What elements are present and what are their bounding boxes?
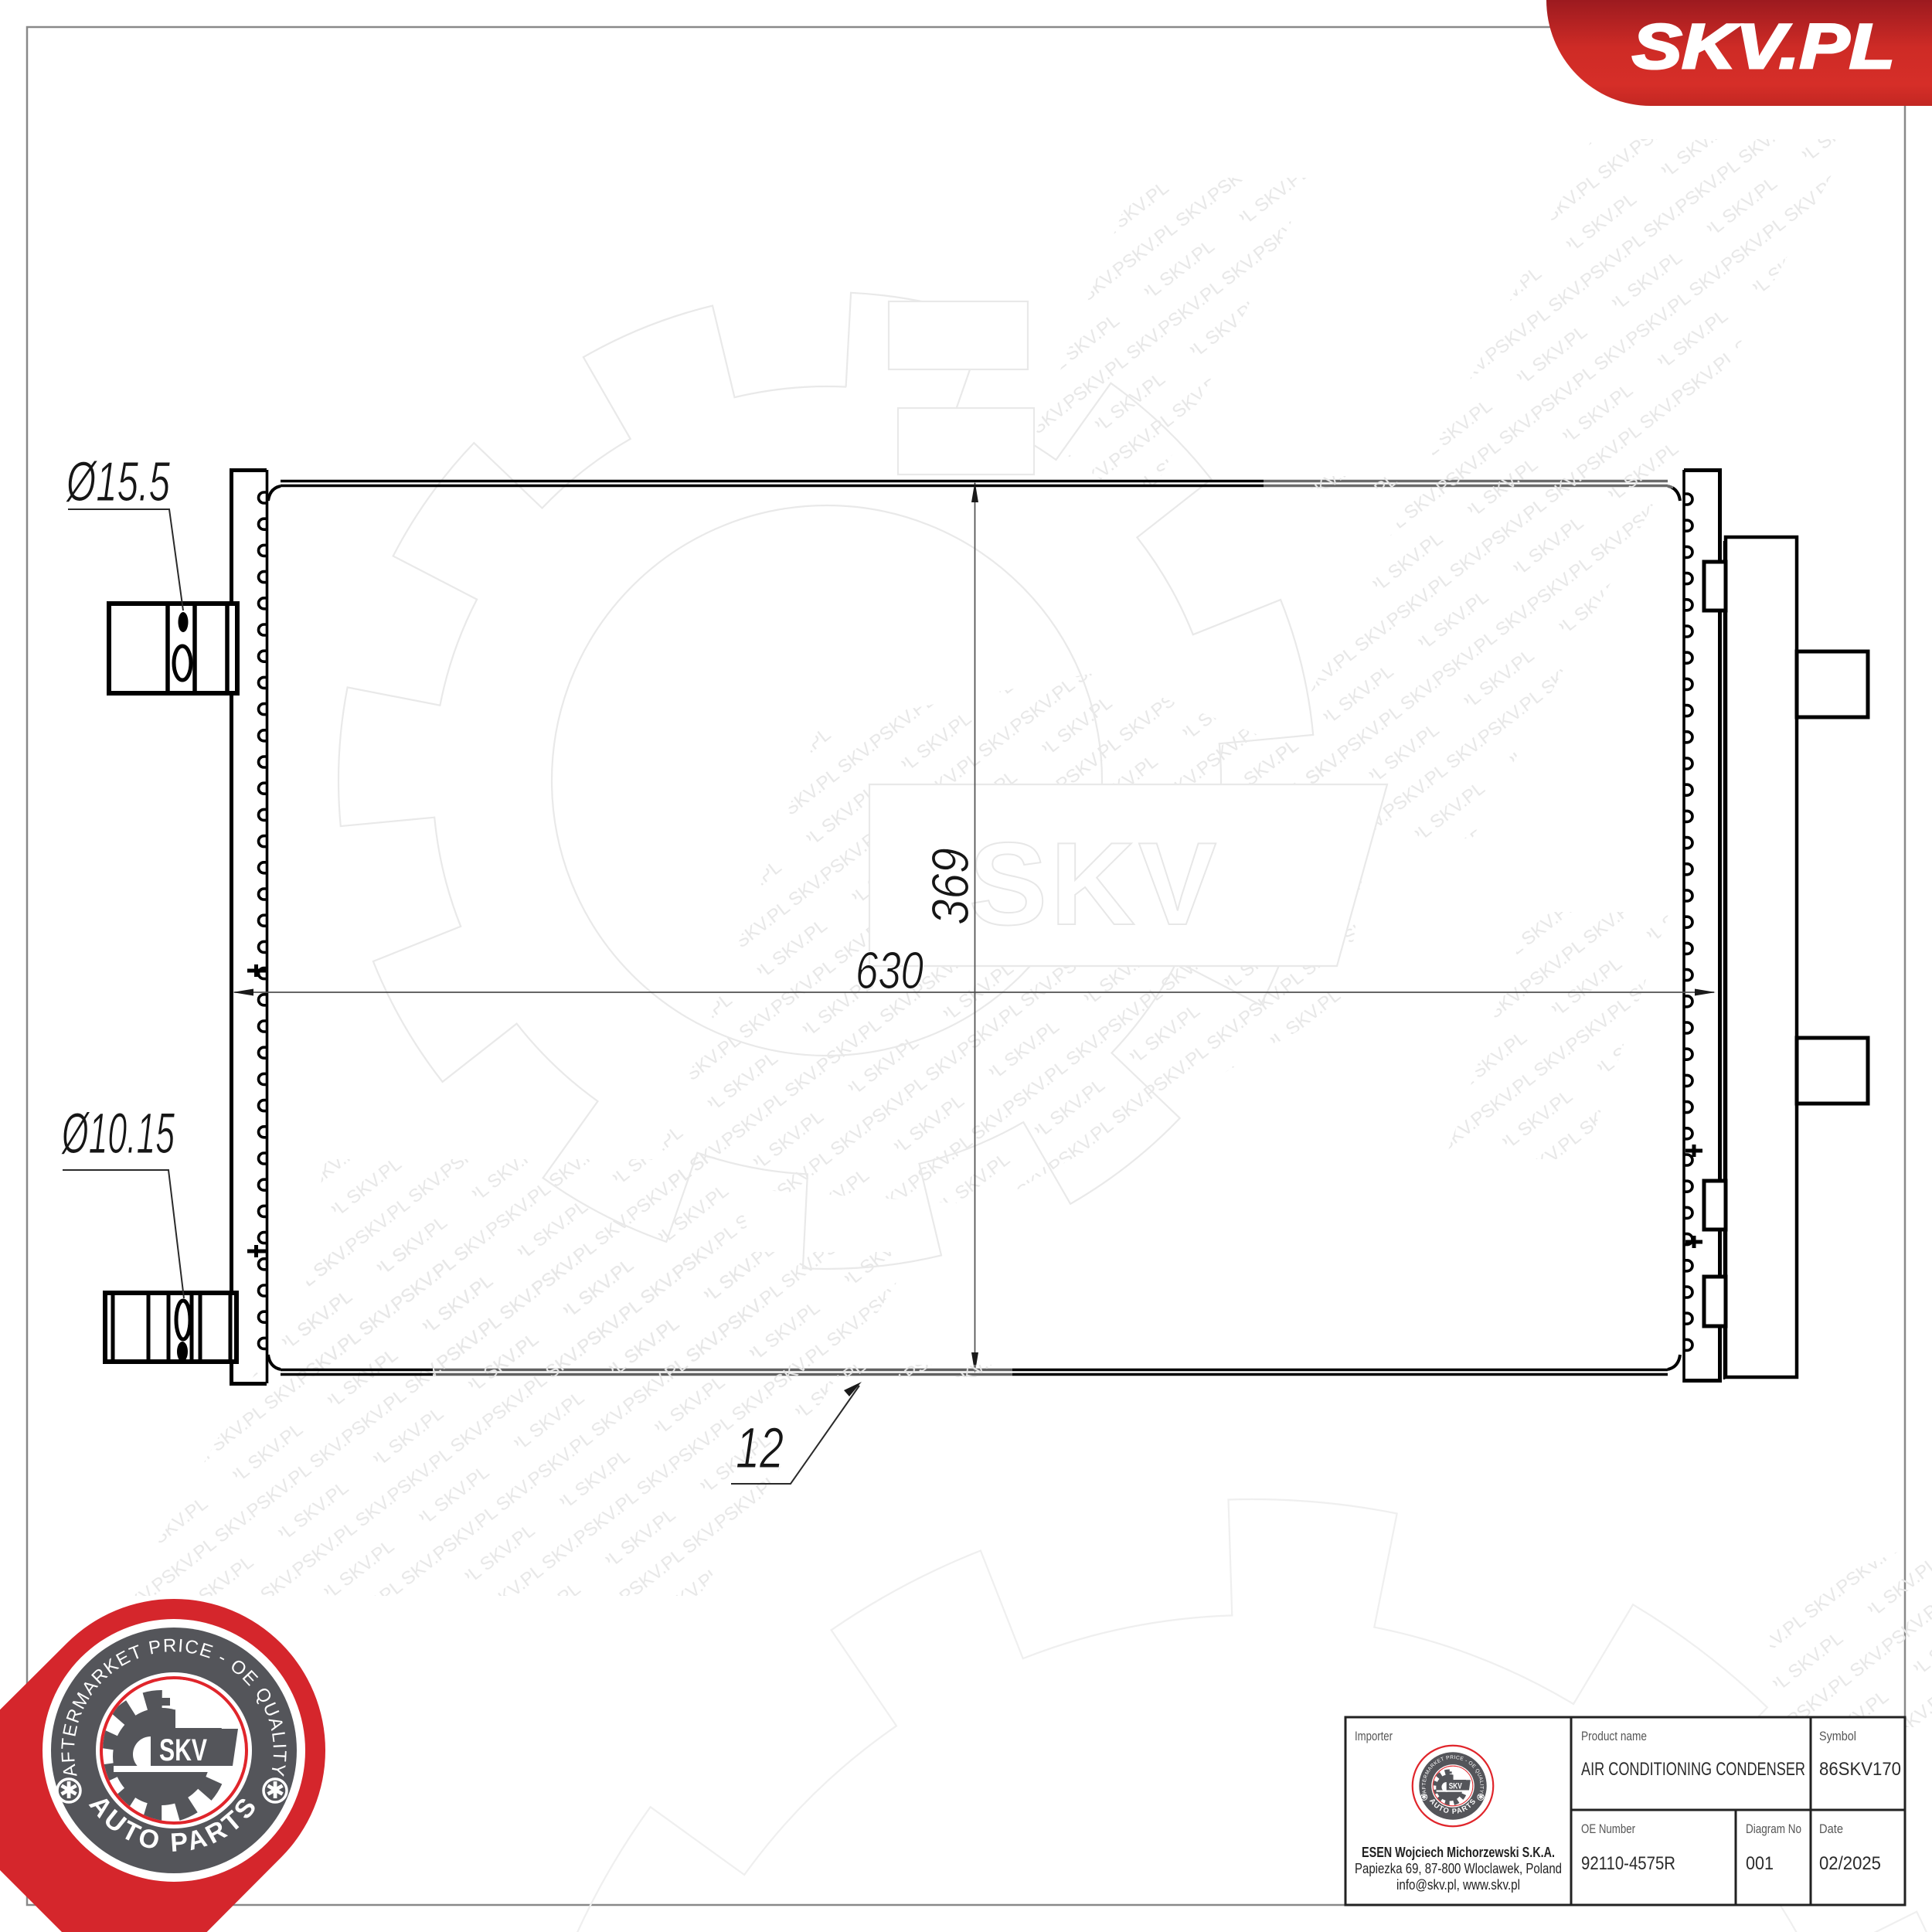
svg-text:✱: ✱ (1478, 1794, 1484, 1801)
svg-text:001: 001 (1746, 1853, 1774, 1874)
svg-text:✱: ✱ (59, 1778, 78, 1804)
svg-text:86SKV170: 86SKV170 (1819, 1759, 1901, 1780)
svg-text:Date: Date (1819, 1821, 1843, 1836)
svg-text:Ø10.15: Ø10.15 (60, 1101, 175, 1165)
svg-text:Importer: Importer (1355, 1729, 1393, 1743)
svg-text:✱: ✱ (265, 1778, 284, 1804)
svg-text:Papiezka 69, 87-800 Wloclawek,: Papiezka 69, 87-800 Wloclawek, Poland (1355, 1861, 1562, 1876)
svg-text:SKV: SKV (969, 818, 1220, 950)
svg-text:369: 369 (921, 848, 980, 925)
svg-text:✱: ✱ (1421, 1794, 1427, 1801)
svg-text:Ø15.5: Ø15.5 (66, 451, 171, 513)
svg-text:Diagram No: Diagram No (1746, 1821, 1801, 1836)
svg-text:OE Number: OE Number (1581, 1821, 1635, 1836)
svg-text:92110-4575R: 92110-4575R (1581, 1853, 1675, 1874)
svg-text:info@skv.pl, www.skv.pl: info@skv.pl, www.skv.pl (1396, 1877, 1520, 1893)
svg-text:SKV: SKV (159, 1733, 207, 1767)
svg-text:AIR CONDITIONING CONDENSER: AIR CONDITIONING CONDENSER (1581, 1759, 1805, 1780)
svg-text:Symbol: Symbol (1819, 1729, 1856, 1743)
svg-text:SKV.PL: SKV.PL (1632, 12, 1895, 82)
svg-text:02/2025: 02/2025 (1819, 1853, 1881, 1874)
svg-text:SKV: SKV (1449, 1782, 1463, 1791)
svg-text:ESEN Wojciech Michorzewski S.K: ESEN Wojciech Michorzewski S.K.A. (1362, 1845, 1555, 1860)
svg-text:630: 630 (855, 941, 923, 1000)
svg-text:Product name: Product name (1581, 1729, 1647, 1743)
svg-text:12: 12 (736, 1416, 784, 1480)
